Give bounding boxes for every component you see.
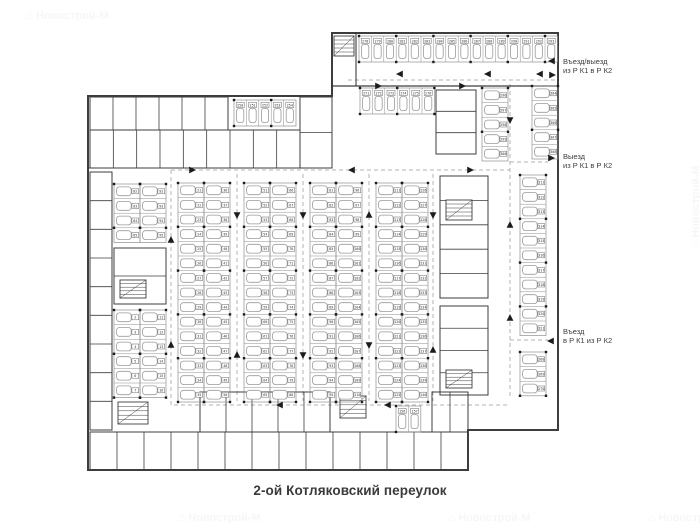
svg-text:77: 77	[289, 349, 293, 353]
svg-text:111: 111	[394, 189, 400, 193]
svg-text:55: 55	[263, 247, 267, 251]
svg-text:25: 25	[197, 247, 201, 251]
svg-text:290: 290	[511, 39, 517, 43]
svg-text:254: 254	[287, 103, 293, 107]
annotation-line: в Р К1 из Р К2	[563, 336, 612, 345]
watermark-logo: ⌂Новострой-М	[178, 510, 261, 524]
svg-text:85: 85	[329, 247, 333, 251]
svg-text:315: 315	[538, 239, 544, 243]
svg-text:93: 93	[159, 204, 163, 208]
svg-text:66: 66	[289, 189, 293, 193]
svg-text:56: 56	[263, 262, 267, 266]
svg-text:36: 36	[223, 189, 227, 193]
svg-text:319: 319	[538, 298, 544, 302]
svg-text:132: 132	[420, 276, 426, 280]
svg-text:283: 283	[424, 39, 430, 43]
svg-text:34: 34	[197, 379, 201, 383]
svg-text:312: 312	[538, 195, 544, 199]
svg-text:291: 291	[523, 39, 529, 43]
svg-text:85: 85	[133, 234, 137, 238]
svg-text:103: 103	[354, 291, 360, 295]
svg-text:82: 82	[133, 190, 137, 194]
svg-text:268: 268	[538, 358, 544, 362]
svg-text:68: 68	[289, 218, 293, 222]
svg-text:32: 32	[197, 349, 201, 353]
svg-text:94: 94	[159, 219, 163, 223]
svg-text:306: 306	[550, 121, 556, 125]
svg-text:62: 62	[263, 349, 267, 353]
annotation-entry-rk1-rk2: Въезд в Р К1 из Р К2	[563, 327, 612, 345]
svg-text:122: 122	[394, 349, 400, 353]
svg-text:275: 275	[413, 91, 419, 95]
svg-text:16: 16	[159, 389, 163, 393]
svg-text:82: 82	[329, 203, 333, 207]
svg-text:100: 100	[354, 247, 360, 251]
svg-text:61: 61	[263, 335, 267, 339]
svg-text:317: 317	[538, 268, 544, 272]
annotation-entry-exit-rk1-rk2: Въезд/выезд из Р К1 в Р К2	[563, 57, 612, 75]
svg-text:130: 130	[420, 247, 426, 251]
svg-text:279: 279	[375, 39, 381, 43]
svg-text:93: 93	[329, 364, 333, 368]
parking-floor-plan: 2782792802812822832842852862872882892902…	[0, 0, 700, 525]
svg-text:139: 139	[420, 379, 426, 383]
svg-text:156: 156	[399, 409, 405, 413]
svg-text:274: 274	[400, 91, 406, 95]
svg-text:92: 92	[159, 190, 163, 194]
svg-text:253: 253	[274, 103, 280, 107]
watermark-logo: ⌂Новострой-М	[688, 165, 700, 248]
svg-text:106: 106	[354, 335, 360, 339]
svg-text:58: 58	[263, 291, 267, 295]
svg-text:51: 51	[263, 189, 267, 193]
svg-text:113: 113	[394, 218, 400, 222]
svg-text:104: 104	[354, 306, 360, 310]
svg-text:95: 95	[329, 393, 333, 397]
svg-text:92: 92	[329, 349, 333, 353]
svg-text:33: 33	[197, 364, 201, 368]
svg-text:83: 83	[329, 218, 333, 222]
svg-text:126: 126	[420, 189, 426, 193]
svg-text:80: 80	[289, 393, 293, 397]
svg-text:65: 65	[263, 393, 267, 397]
svg-text:86: 86	[329, 262, 333, 266]
svg-text:87: 87	[329, 276, 333, 280]
svg-text:90: 90	[329, 320, 333, 324]
annotation-line: из Р К1 в Р К2	[563, 66, 612, 75]
svg-text:137: 137	[420, 349, 426, 353]
svg-text:42: 42	[223, 276, 227, 280]
svg-text:133: 133	[420, 291, 426, 295]
svg-text:308: 308	[550, 150, 556, 154]
svg-text:53: 53	[263, 218, 267, 222]
svg-text:98: 98	[355, 218, 359, 222]
svg-text:287: 287	[474, 39, 480, 43]
svg-text:307: 307	[550, 136, 556, 140]
svg-text:71: 71	[289, 262, 293, 266]
svg-text:299: 299	[500, 138, 506, 142]
svg-text:11: 11	[159, 316, 163, 320]
svg-text:119: 119	[394, 306, 400, 310]
svg-text:129: 129	[420, 233, 426, 237]
floor-plan-svg: 2782792802812822832842852862872882892902…	[0, 0, 700, 525]
svg-text:78: 78	[289, 364, 293, 368]
svg-text:84: 84	[133, 219, 137, 223]
svg-text:39: 39	[223, 233, 227, 237]
house-icon: ⌂	[178, 510, 185, 524]
svg-text:29: 29	[197, 306, 201, 310]
svg-text:13: 13	[159, 345, 163, 349]
watermark-text: Новострой-М	[458, 512, 530, 524]
svg-text:313: 313	[538, 210, 544, 214]
annotation-line: из Р К1 в Р К2	[563, 161, 612, 170]
svg-text:286: 286	[461, 39, 467, 43]
svg-text:95: 95	[159, 234, 163, 238]
svg-text:81: 81	[329, 189, 333, 193]
svg-text:67: 67	[289, 203, 293, 207]
svg-text:47: 47	[223, 349, 227, 353]
svg-text:44: 44	[223, 306, 227, 310]
svg-text:60: 60	[263, 320, 267, 324]
watermark-text: Новострой-М	[690, 165, 700, 237]
house-icon: ⌂	[688, 241, 700, 248]
svg-text:91: 91	[329, 335, 333, 339]
svg-text:40: 40	[223, 247, 227, 251]
svg-text:15: 15	[159, 374, 163, 378]
svg-text:21: 21	[197, 189, 201, 193]
svg-text:76: 76	[289, 335, 293, 339]
watermark-logo: ⌂Новострой-М	[648, 510, 700, 524]
svg-text:251: 251	[250, 103, 256, 107]
svg-text:293: 293	[548, 39, 554, 43]
svg-text:97: 97	[355, 203, 359, 207]
svg-text:109: 109	[354, 379, 360, 383]
svg-text:140: 140	[420, 393, 426, 397]
svg-text:38: 38	[223, 218, 227, 222]
annotation-exit-rk1-rk2: Выезд из Р К1 в Р К2	[563, 152, 612, 170]
svg-text:115: 115	[394, 247, 400, 251]
svg-text:12: 12	[159, 330, 163, 334]
svg-text:88: 88	[329, 291, 333, 295]
svg-text:300: 300	[500, 152, 506, 156]
svg-text:270: 270	[538, 387, 544, 391]
house-icon: ⌂	[648, 510, 655, 524]
svg-text:107: 107	[354, 349, 360, 353]
svg-text:114: 114	[394, 233, 400, 237]
svg-text:128: 128	[420, 218, 426, 222]
svg-text:24: 24	[197, 233, 201, 237]
svg-text:125: 125	[394, 393, 400, 397]
svg-text:284: 284	[437, 39, 443, 43]
svg-text:269: 269	[538, 372, 544, 376]
house-icon: ⌂	[448, 510, 455, 524]
annotation-line: Въезд/выезд	[563, 57, 612, 66]
svg-text:321: 321	[538, 327, 544, 331]
svg-text:31: 31	[197, 335, 201, 339]
svg-text:112: 112	[394, 203, 400, 207]
svg-text:41: 41	[223, 262, 227, 266]
svg-text:52: 52	[263, 203, 267, 207]
svg-text:127: 127	[420, 203, 426, 207]
svg-text:282: 282	[412, 39, 418, 43]
svg-text:43: 43	[223, 291, 227, 295]
svg-text:27: 27	[197, 276, 201, 280]
svg-text:320: 320	[538, 312, 544, 316]
svg-text:110: 110	[354, 393, 360, 397]
street-title: 2-ой Котляковский переулок	[0, 483, 700, 498]
svg-text:285: 285	[449, 39, 455, 43]
svg-text:2: 2	[134, 316, 136, 320]
svg-text:101: 101	[354, 262, 360, 266]
annotation-line: Въезд	[563, 327, 612, 336]
svg-text:84: 84	[329, 233, 333, 237]
svg-text:26: 26	[197, 262, 201, 266]
svg-text:50: 50	[223, 393, 227, 397]
watermark-text: Новострой-М	[658, 512, 700, 524]
svg-text:105: 105	[354, 320, 360, 324]
svg-text:54: 54	[263, 233, 267, 237]
svg-text:276: 276	[425, 91, 431, 95]
svg-text:157: 157	[412, 409, 418, 413]
house-icon: ⌂	[26, 8, 33, 22]
svg-text:73: 73	[289, 291, 293, 295]
svg-text:59: 59	[263, 306, 267, 310]
svg-text:124: 124	[394, 379, 400, 383]
svg-text:63: 63	[263, 364, 267, 368]
svg-text:28: 28	[197, 291, 201, 295]
watermark-text: Новострой-М	[188, 512, 260, 524]
svg-text:297: 297	[500, 108, 506, 112]
svg-text:74: 74	[289, 306, 293, 310]
svg-text:7: 7	[134, 389, 136, 393]
svg-text:318: 318	[538, 283, 544, 287]
svg-text:138: 138	[420, 364, 426, 368]
svg-text:99: 99	[355, 233, 359, 237]
svg-text:252: 252	[262, 103, 268, 107]
watermark-text: Новострой-М	[36, 10, 108, 22]
svg-text:22: 22	[197, 203, 201, 207]
svg-text:280: 280	[387, 39, 393, 43]
watermark-logo: ⌂Новострой-М	[448, 510, 531, 524]
svg-text:250: 250	[237, 103, 243, 107]
svg-text:136: 136	[420, 335, 426, 339]
annotation-line: Выезд	[563, 152, 612, 161]
svg-text:89: 89	[329, 306, 333, 310]
svg-text:45: 45	[223, 320, 227, 324]
svg-text:298: 298	[500, 123, 506, 127]
svg-text:75: 75	[289, 320, 293, 324]
svg-text:94: 94	[329, 379, 333, 383]
svg-text:72: 72	[289, 276, 293, 280]
svg-text:96: 96	[355, 189, 359, 193]
svg-text:49: 49	[223, 379, 227, 383]
svg-text:272: 272	[376, 91, 382, 95]
svg-text:116: 116	[394, 262, 400, 266]
svg-text:118: 118	[394, 291, 400, 295]
svg-text:46: 46	[223, 335, 227, 339]
svg-text:35: 35	[197, 393, 201, 397]
svg-text:131: 131	[420, 262, 426, 266]
svg-text:64: 64	[263, 379, 267, 383]
svg-text:108: 108	[354, 364, 360, 368]
svg-text:70: 70	[289, 247, 293, 251]
svg-text:48: 48	[223, 364, 227, 368]
svg-text:304: 304	[550, 92, 556, 96]
svg-text:305: 305	[550, 106, 556, 110]
svg-text:271: 271	[363, 91, 369, 95]
svg-text:273: 273	[388, 91, 394, 95]
svg-text:120: 120	[394, 320, 400, 324]
svg-text:121: 121	[394, 335, 400, 339]
svg-text:69: 69	[289, 233, 293, 237]
svg-text:314: 314	[538, 225, 544, 229]
svg-text:3: 3	[134, 330, 136, 334]
svg-text:79: 79	[289, 379, 293, 383]
svg-text:288: 288	[486, 39, 492, 43]
svg-text:14: 14	[159, 360, 163, 364]
svg-text:311: 311	[538, 181, 544, 185]
svg-text:296: 296	[500, 94, 506, 98]
svg-text:83: 83	[133, 204, 137, 208]
watermark-logo: ⌂Новострой-М	[26, 8, 109, 22]
svg-text:4: 4	[134, 345, 136, 349]
svg-text:281: 281	[399, 39, 405, 43]
svg-text:316: 316	[538, 254, 544, 258]
svg-text:6: 6	[134, 374, 136, 378]
svg-text:123: 123	[394, 364, 400, 368]
svg-text:134: 134	[420, 306, 426, 310]
svg-text:102: 102	[354, 276, 360, 280]
svg-text:292: 292	[536, 39, 542, 43]
svg-text:278: 278	[362, 39, 368, 43]
svg-text:37: 37	[223, 203, 227, 207]
svg-text:30: 30	[197, 320, 201, 324]
svg-text:117: 117	[394, 276, 400, 280]
svg-text:289: 289	[499, 39, 505, 43]
svg-text:57: 57	[263, 276, 267, 280]
svg-text:135: 135	[420, 320, 426, 324]
svg-text:23: 23	[197, 218, 201, 222]
svg-text:5: 5	[134, 360, 136, 364]
